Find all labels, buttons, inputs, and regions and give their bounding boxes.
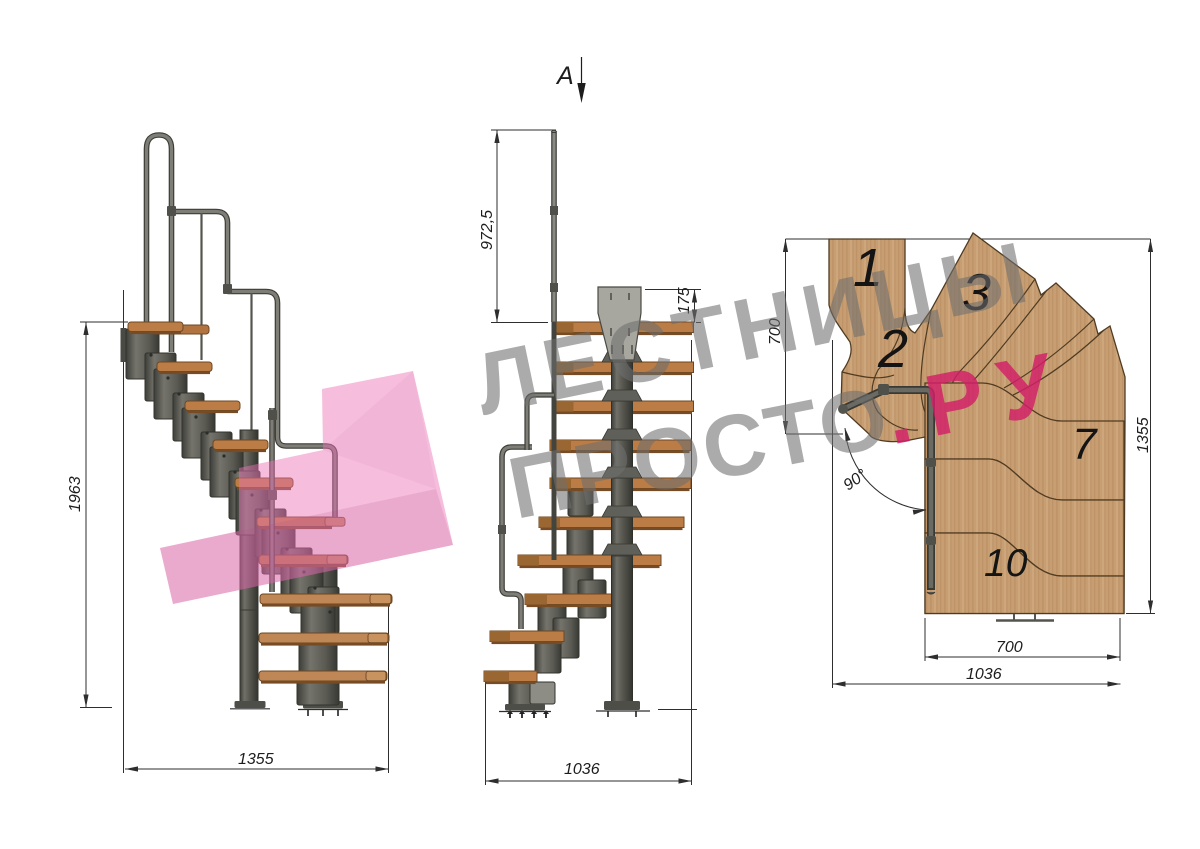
svg-text:1036: 1036 — [564, 761, 600, 778]
svg-text:10: 10 — [984, 542, 1028, 585]
svg-text:1963: 1963 — [67, 476, 84, 512]
svg-text:1355: 1355 — [238, 751, 274, 768]
svg-text:1355: 1355 — [1135, 417, 1152, 453]
svg-text:7: 7 — [1072, 420, 1098, 469]
svg-text:1036: 1036 — [966, 666, 1002, 683]
svg-text:972,5: 972,5 — [479, 210, 496, 250]
svg-text:А: А — [555, 62, 574, 90]
svg-text:700: 700 — [996, 639, 1023, 656]
